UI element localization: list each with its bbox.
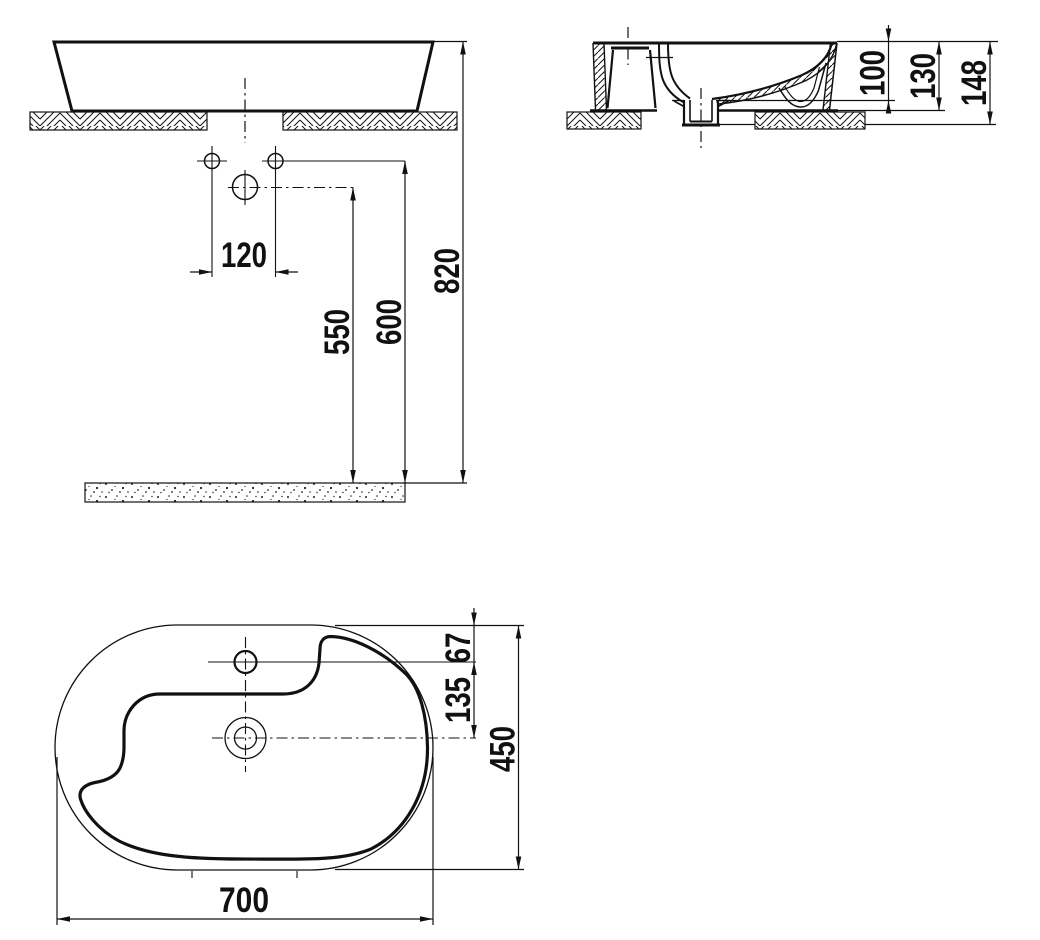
dim-label-148: 148	[955, 60, 994, 106]
counter-block-left	[567, 112, 641, 129]
dim-label-120: 120	[221, 236, 267, 275]
dim-label-67: 67	[439, 633, 478, 664]
dim-label-820: 820	[428, 248, 467, 294]
supply-holes	[205, 154, 284, 200]
dim-label-100: 100	[854, 50, 893, 96]
countertop-hatch-right	[283, 112, 457, 130]
dim-label-550: 550	[318, 309, 357, 355]
floor	[85, 483, 467, 502]
floor-strip	[85, 483, 405, 502]
dim-label-130: 130	[904, 53, 943, 99]
dim-label-135: 135	[439, 677, 478, 723]
basin-front-outline	[54, 42, 433, 111]
plan-extension-lines	[57, 626, 524, 926]
countertop-hatch-left	[30, 112, 207, 130]
dim-label-450: 450	[484, 726, 523, 772]
washbasin-drawing: 120 550 600 820 100 130 148 67 135 450 7…	[0, 0, 1040, 940]
counter-block-right	[755, 112, 865, 129]
technical-drawing-sheet: 120 550 600 820 100 130 148 67 135 450 7…	[0, 0, 1040, 940]
countertop-front	[30, 112, 457, 130]
dim-label-600: 600	[370, 299, 409, 345]
deck-wall-inner	[668, 43, 690, 99]
dim-label-700: 700	[219, 881, 269, 920]
